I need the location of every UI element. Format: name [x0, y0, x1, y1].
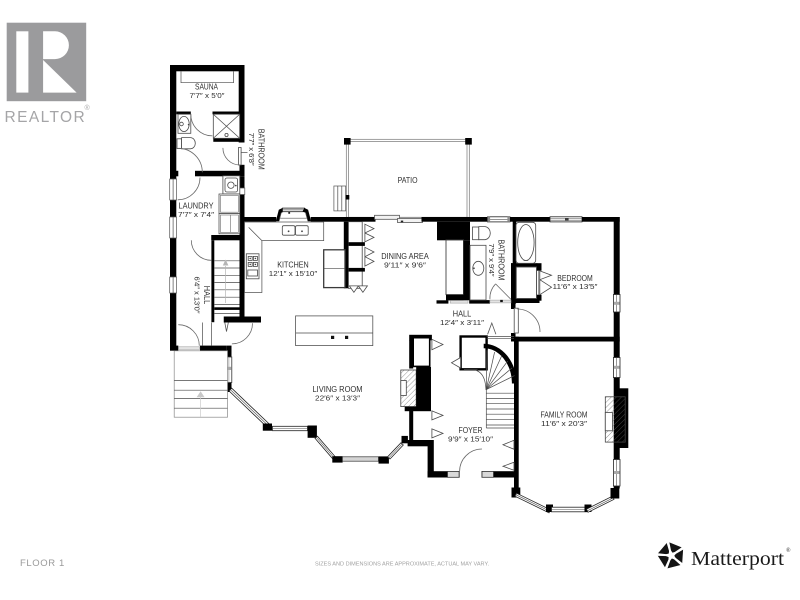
svg-text:12′4″ x 3′11″: 12′4″ x 3′11″ [440, 318, 484, 327]
svg-text:9′11″ x 9′6″: 9′11″ x 9′6″ [384, 260, 426, 269]
svg-text:HALL: HALL [202, 286, 211, 305]
svg-text:BATHROOM: BATHROOM [257, 129, 266, 170]
svg-text:11′6″ x 13′5″: 11′6″ x 13′5″ [553, 282, 598, 291]
svg-text:7′7″ x 6′8″: 7′7″ x 6′8″ [247, 133, 256, 166]
svg-text:22′6″ x 13′3″: 22′6″ x 13′3″ [315, 393, 360, 402]
svg-text:®: ® [85, 104, 91, 112]
svg-text:PATIO: PATIO [398, 176, 418, 185]
svg-text:7′7″ x 7′4″: 7′7″ x 7′4″ [178, 210, 214, 219]
svg-text:7′9″ x 9′4″: 7′9″ x 9′4″ [487, 244, 496, 277]
svg-text:Matterport: Matterport [691, 548, 784, 570]
svg-text:®: ® [786, 547, 791, 554]
svg-text:6′4″ x 13′0″: 6′4″ x 13′0″ [193, 277, 202, 314]
svg-text:SIZES AND DIMENSIONS ARE APPRO: SIZES AND DIMENSIONS ARE APPROXIMATE, AC… [315, 562, 489, 568]
svg-text:12′1″ x 15′10″: 12′1″ x 15′10″ [269, 269, 318, 278]
svg-text:7′7″ x 5′0″: 7′7″ x 5′0″ [190, 91, 225, 100]
svg-text:9′9″ x 15′10″: 9′9″ x 15′10″ [448, 434, 493, 443]
svg-text:REALTOR: REALTOR [5, 109, 87, 126]
svg-text:11′6″ x 20′3″: 11′6″ x 20′3″ [541, 419, 587, 428]
svg-text:FLOOR 1: FLOOR 1 [20, 558, 65, 569]
svg-text:BATHROOM: BATHROOM [497, 240, 506, 281]
